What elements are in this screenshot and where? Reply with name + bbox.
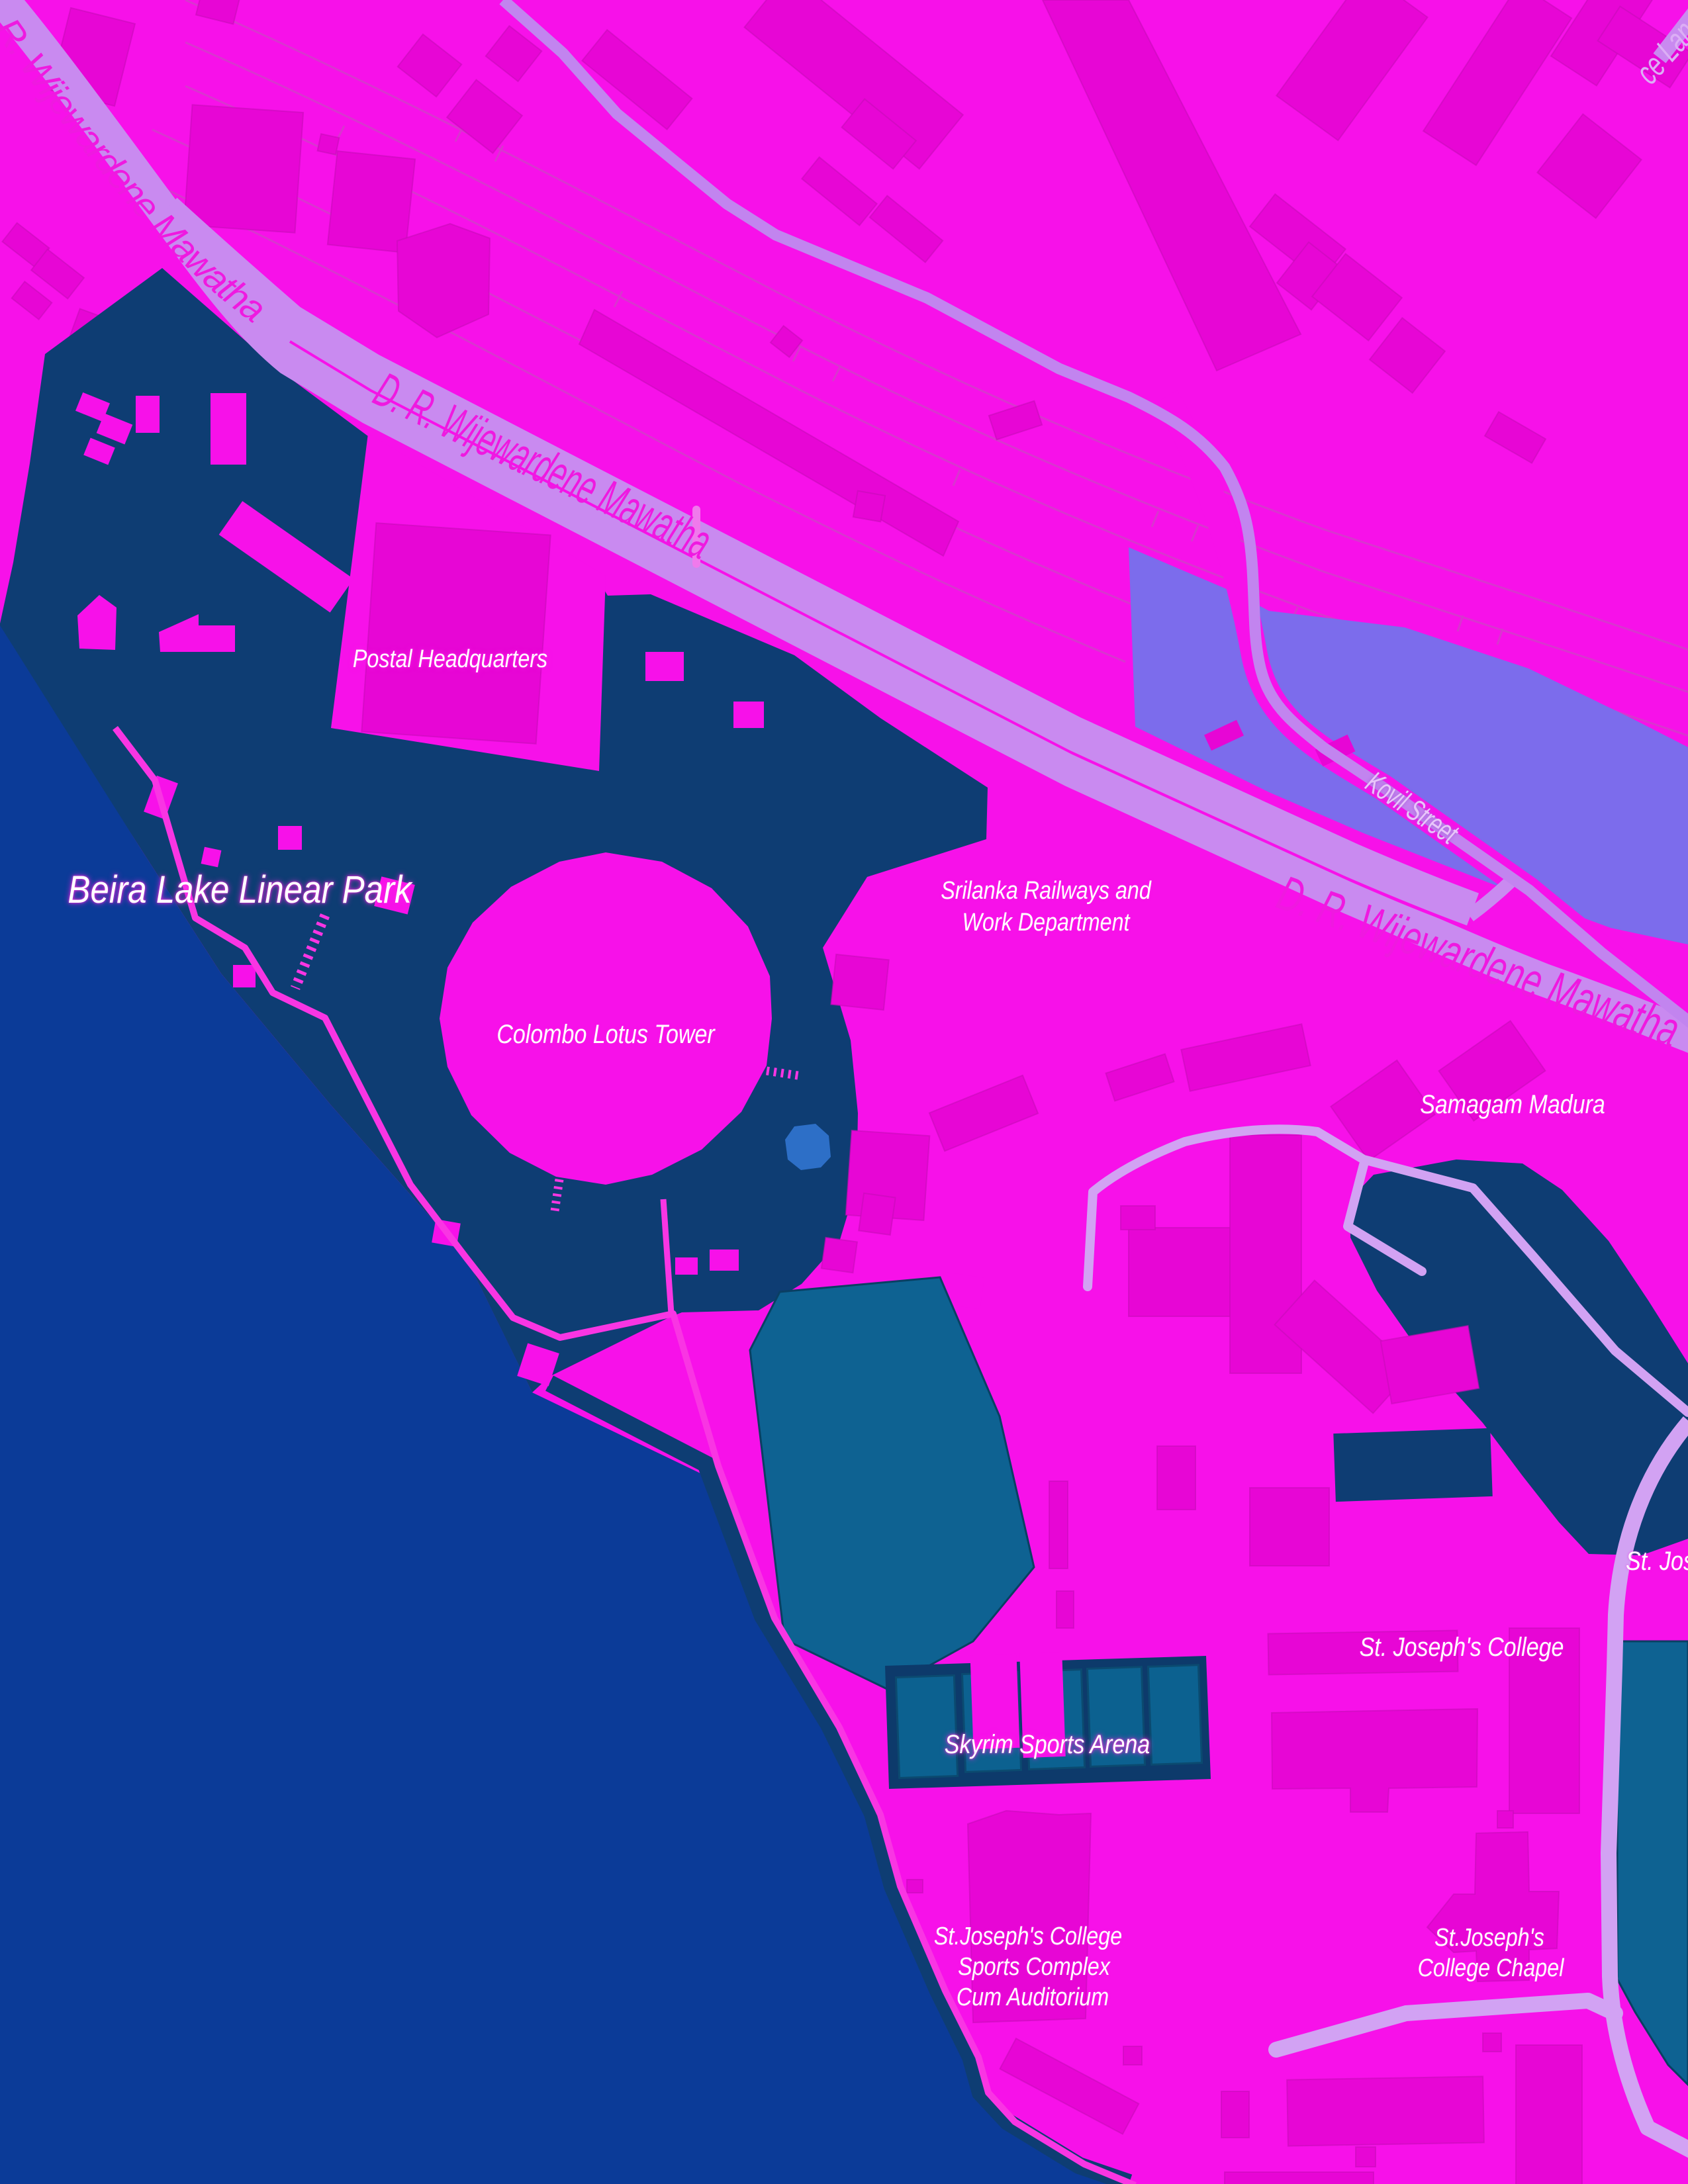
svg-text:Colombo Lotus Tower: Colombo Lotus Tower bbox=[496, 1019, 716, 1048]
svg-text:Sports Complex: Sports Complex bbox=[958, 1953, 1111, 1981]
svg-text:St.Joseph's: St.Joseph's bbox=[1434, 1924, 1544, 1952]
svg-text:Postal Headquarters: Postal Headquarters bbox=[353, 645, 547, 673]
svg-text:St.Joseph's College: St.Joseph's College bbox=[934, 1923, 1122, 1950]
svg-text:Samagam Madura: Samagam Madura bbox=[1420, 1089, 1605, 1118]
svg-text:St. Jos: St. Jos bbox=[1626, 1545, 1688, 1575]
svg-text:Cum Auditorium: Cum Auditorium bbox=[957, 1983, 1109, 2011]
svg-text:College Chapel: College Chapel bbox=[1418, 1954, 1565, 1982]
svg-text:Skyrim Sports Arena: Skyrim Sports Arena bbox=[945, 1729, 1150, 1758]
svg-text:Work Department: Work Department bbox=[962, 909, 1131, 936]
svg-text:Srilanka Railways and: Srilanka Railways and bbox=[941, 877, 1152, 905]
svg-text:St. Joseph's College: St. Joseph's College bbox=[1360, 1631, 1564, 1661]
svg-text:Beira Lake Linear Park: Beira Lake Linear Park bbox=[68, 868, 413, 911]
